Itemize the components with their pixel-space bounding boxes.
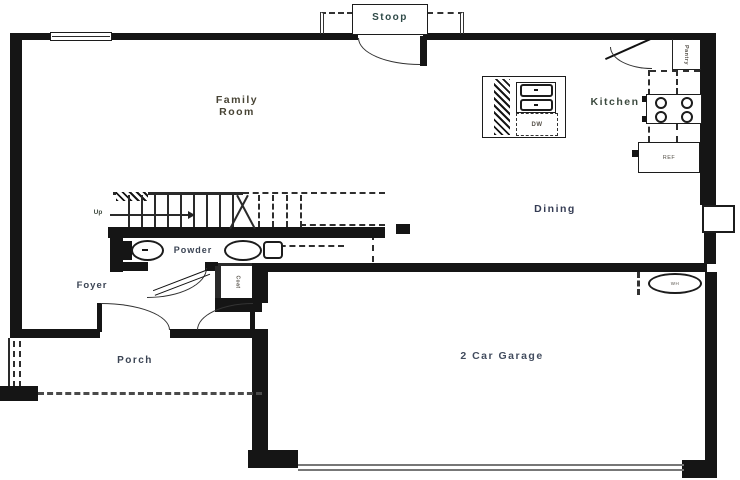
sink-drain-bottom — [534, 104, 538, 106]
floor-plan: Stoop Family Room Kitchen DW REF Pantry … — [0, 0, 740, 480]
wall-garage-west-lower — [252, 331, 268, 460]
stair-tread-2 — [141, 195, 143, 227]
stairs-direction-arrowhead — [188, 211, 195, 219]
room-label-pantry: Pantry — [684, 44, 690, 64]
garage-entry-door-swing-arc — [197, 303, 253, 330]
stair-bottom-edge-dashed — [300, 224, 385, 226]
room-label-closet: Coat — [235, 275, 241, 288]
counter-divider-dashed-b — [676, 124, 678, 142]
stair-tread-7 — [206, 195, 208, 227]
room-label-garage: 2 Car Garage — [430, 351, 574, 363]
porch-post-dash-b — [19, 341, 21, 387]
room-label-dining: Dining — [522, 204, 588, 216]
stair-tread-dashed-2 — [272, 195, 274, 227]
stair-tread-4 — [167, 195, 169, 227]
range-burner-3 — [655, 111, 667, 123]
hall-dashed-vertical — [372, 234, 374, 262]
range-tab-top — [642, 96, 647, 102]
powder-sink-counter — [263, 241, 283, 259]
front-door-swing-arc — [358, 38, 420, 65]
stair-tread-dashed-1 — [258, 195, 260, 227]
stair-tread-dashed-4 — [300, 195, 302, 227]
pantry-door-swing-arc — [610, 47, 652, 69]
pantry-label-wrap: Pantry — [672, 39, 701, 70]
wall-right-mid — [704, 233, 716, 264]
dishwasher-label: DW — [532, 122, 543, 128]
stair-section-hatch — [116, 192, 148, 201]
sink-drain-top — [534, 89, 538, 91]
garage-door-sill-outer — [298, 464, 684, 466]
wall-garage-east — [705, 272, 717, 463]
wall-garage-sw-block — [248, 450, 298, 468]
window-box-dining — [702, 205, 735, 233]
range-burner-1 — [655, 97, 667, 109]
foyer-front-door-swing-arc — [101, 303, 170, 330]
stair-tread-dashed-3 — [286, 195, 288, 227]
powder-sink-bowl — [224, 240, 262, 261]
stairs-up-label: Up — [88, 209, 108, 216]
wall-powder-west — [110, 227, 123, 272]
wall-stair-south — [108, 227, 385, 238]
stair-tread-5 — [180, 195, 182, 227]
stair-top-edge-dashed — [243, 192, 385, 194]
wall-foyer-south-a — [10, 329, 100, 338]
closet-label-wrap: Coat — [224, 266, 252, 298]
room-label-porch: Porch — [100, 355, 170, 366]
range-burner-4 — [681, 111, 693, 123]
stoop-dashed-right — [427, 12, 464, 34]
front-door-leaf — [420, 36, 427, 66]
island-bar-hatch — [494, 79, 510, 135]
stairs-direction-line — [110, 214, 190, 216]
refrigerator-label: REF — [663, 155, 676, 161]
stoop-dashed-left — [320, 12, 353, 34]
room-label-kitchen: Kitchen — [578, 97, 652, 109]
counter-divider-dashed-a — [676, 70, 678, 94]
wall-stair-end-post — [396, 224, 410, 234]
range-burner-2 — [681, 97, 693, 109]
stair-tread-1 — [128, 195, 130, 227]
wall-left — [10, 33, 22, 338]
room-label-family-room: Family Room — [202, 95, 272, 118]
stair-tread-3 — [154, 195, 156, 227]
porch-edge-dashed-south — [38, 392, 262, 395]
dishwasher: DW — [516, 113, 558, 136]
refrigerator-handle — [632, 150, 639, 157]
room-label-powder: Powder — [163, 246, 223, 256]
room-label-foyer: Foyer — [62, 281, 122, 291]
porch-post-dash-a — [13, 341, 15, 387]
water-heater-label: WH — [671, 281, 680, 286]
toilet-detail — [142, 249, 148, 251]
counter-dashed-top — [650, 70, 700, 72]
wall-garage-west-upper — [252, 263, 268, 303]
stair-tread-8 — [219, 195, 221, 227]
water-heater: WH — [648, 273, 702, 294]
refrigerator: REF — [638, 142, 700, 173]
range-cooktop — [646, 94, 702, 124]
porch-pier-block — [0, 386, 38, 401]
garage-door-sill-inner — [298, 469, 684, 471]
wall-closet-west — [215, 266, 221, 300]
range-tab-bottom — [642, 116, 647, 122]
wall-dining-south — [252, 263, 707, 272]
wall-garage-se-block — [682, 460, 717, 478]
window-glazing-line — [52, 36, 110, 37]
wall-right-upper — [700, 39, 716, 205]
room-label-stoop: Stoop — [352, 12, 428, 23]
